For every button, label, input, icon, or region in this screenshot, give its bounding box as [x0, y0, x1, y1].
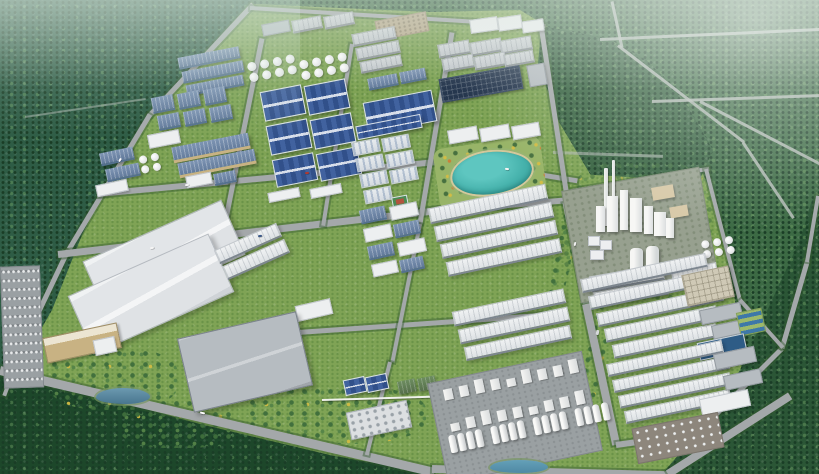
process-unit — [543, 399, 554, 412]
plant-pond — [490, 460, 548, 473]
car — [185, 184, 189, 186]
storage-tank — [152, 162, 161, 171]
process-unit — [490, 377, 501, 390]
process-unit — [567, 358, 579, 374]
storage-tank — [140, 165, 149, 174]
car — [305, 172, 309, 174]
process-unit — [559, 396, 570, 409]
process-unit — [512, 406, 523, 419]
car-park-rows — [0, 265, 44, 388]
storage-tank — [150, 152, 159, 161]
storage-tank — [138, 155, 147, 164]
process-unit — [465, 416, 476, 429]
process-unit — [458, 384, 469, 397]
corner-haze — [0, 0, 300, 140]
corner-haze — [400, 0, 819, 260]
process-unit — [480, 410, 492, 426]
silo — [474, 429, 485, 448]
process-unit — [473, 378, 485, 394]
process-unit — [443, 387, 454, 400]
process-unit — [496, 409, 507, 422]
process-unit — [574, 390, 586, 406]
process-unit — [520, 368, 532, 384]
process-unit — [537, 368, 548, 381]
process-unit — [506, 377, 516, 387]
industrial-park-render — [0, 0, 819, 474]
silo — [558, 411, 569, 430]
silo — [516, 420, 527, 439]
retention-pond — [96, 388, 150, 404]
process-unit — [552, 364, 563, 377]
